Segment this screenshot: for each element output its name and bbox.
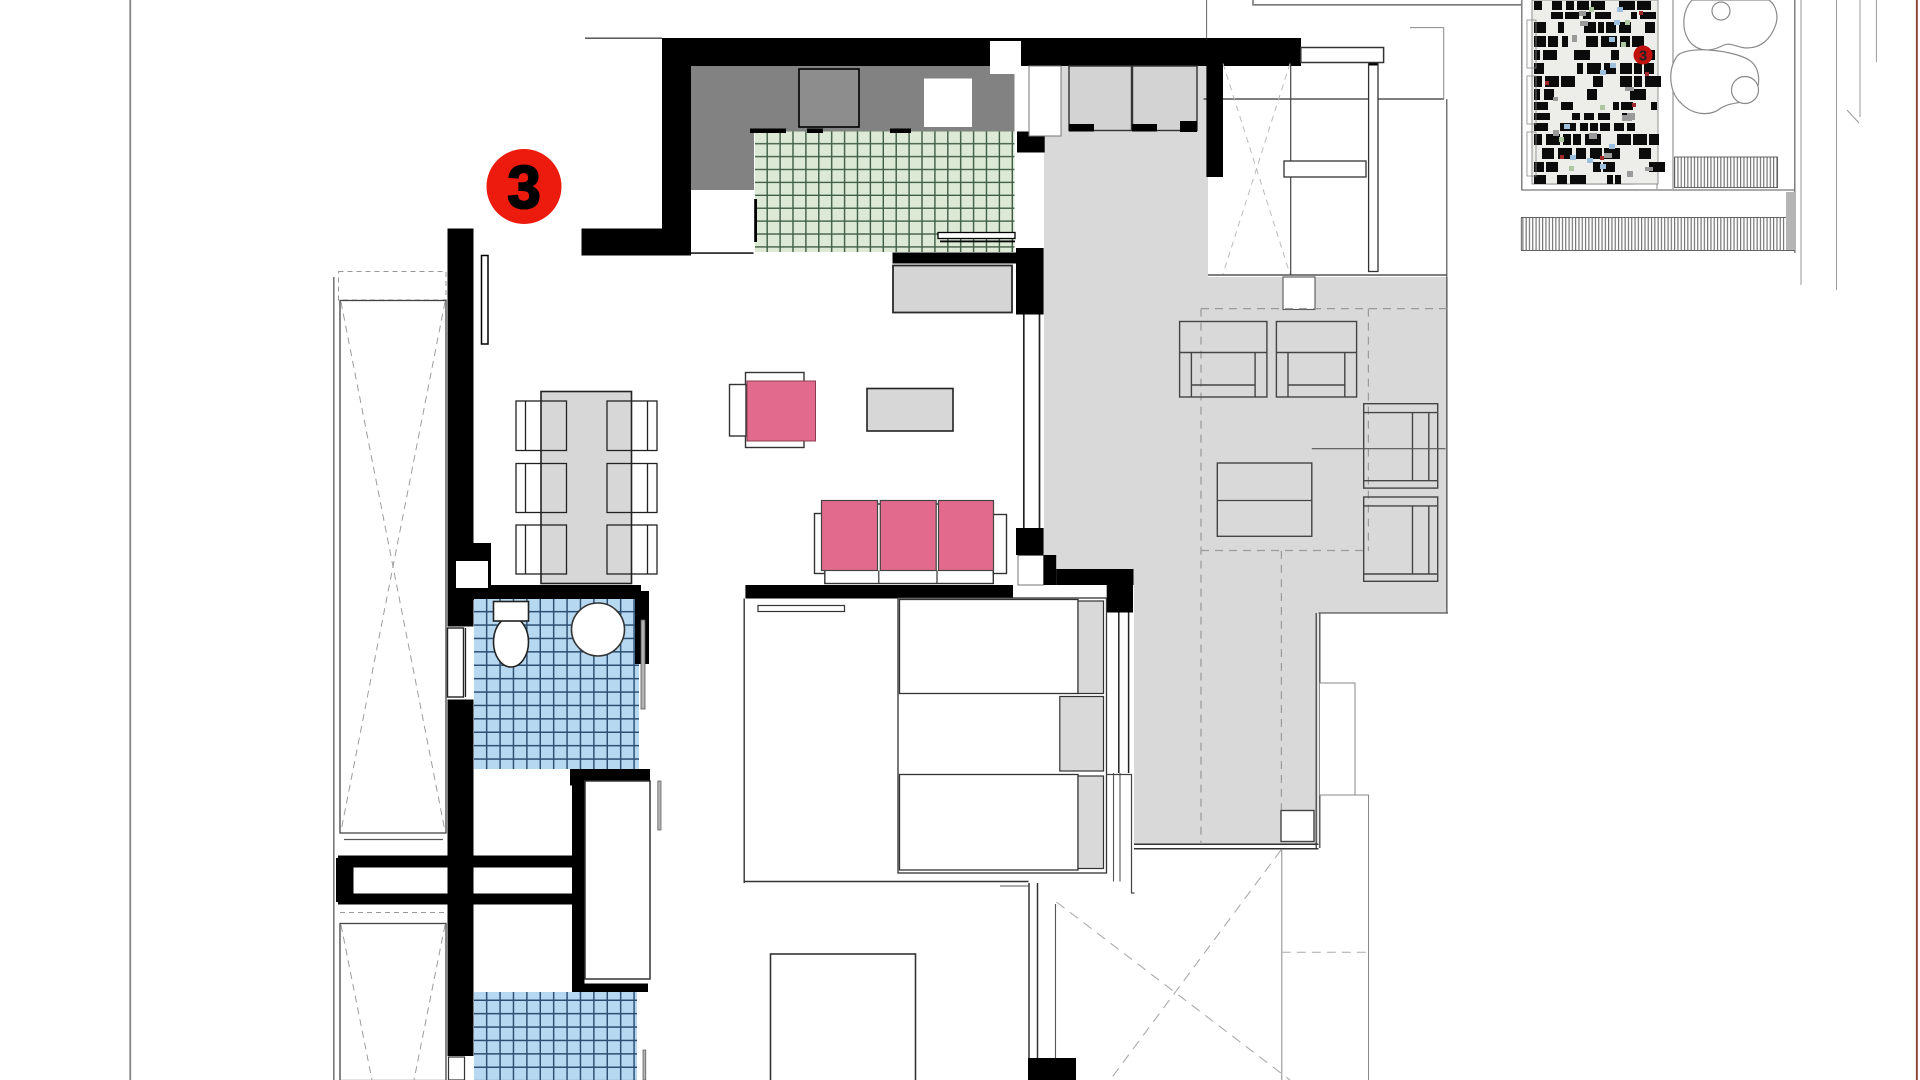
svg-text:3: 3 <box>1639 48 1647 65</box>
svg-text:3: 3 <box>507 154 540 221</box>
